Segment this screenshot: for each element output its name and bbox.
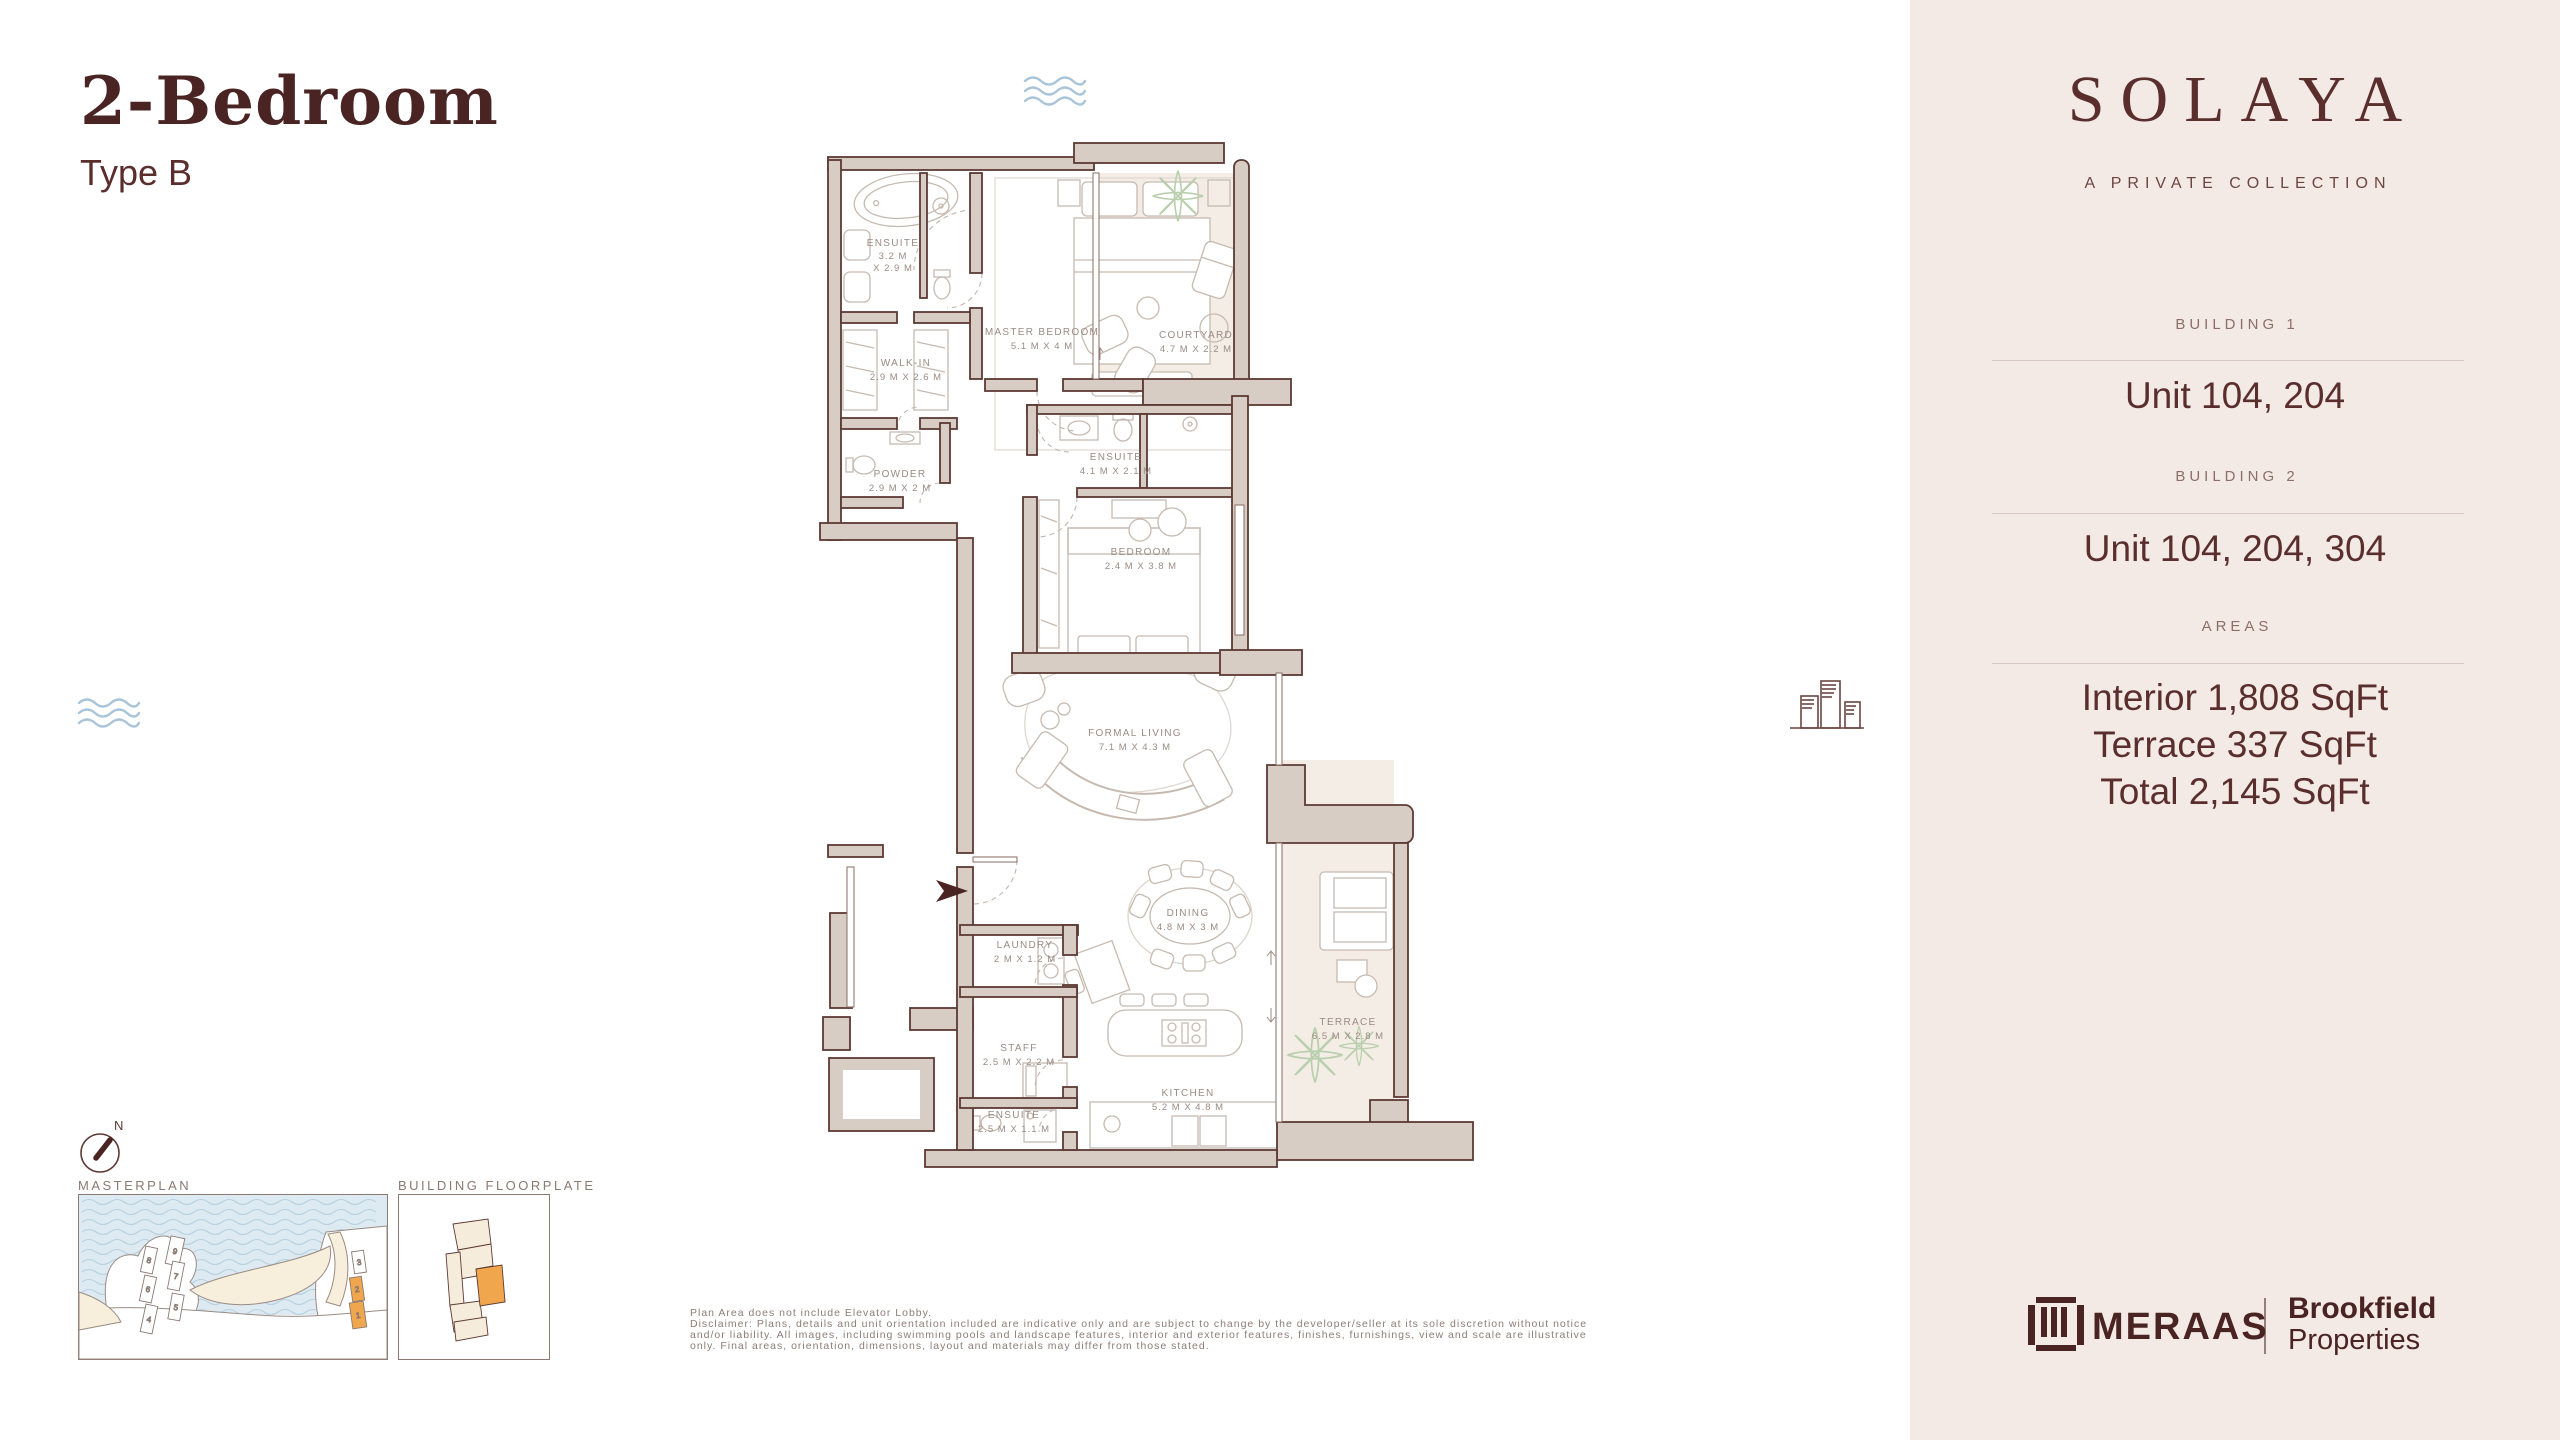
svg-text:5.1 M X 4 M: 5.1 M X 4 M bbox=[1011, 341, 1073, 352]
skyline-icon bbox=[1788, 674, 1868, 736]
meraas-wordmark: MERAAS bbox=[2092, 1306, 2269, 1349]
compass-icon: N bbox=[74, 1116, 138, 1180]
elevator-core bbox=[843, 1070, 920, 1119]
page-subtitle: Type B bbox=[80, 152, 192, 194]
floor-plan: ENSUITE 3.2 M X 2.9 M MASTER BEDROOM 5.1… bbox=[810, 60, 1490, 1180]
room-label-ensuite-master: ENSUITE bbox=[867, 238, 919, 249]
floorplate-label: BUILDING FLOORPLATE bbox=[398, 1178, 596, 1193]
room-label-walk-in: WALK-IN bbox=[881, 358, 931, 369]
brochure-page: 2-Bedroom Type B bbox=[0, 0, 2560, 1440]
masterplan-thumbnail: 9 8 7 6 5 4 3 2 1 bbox=[78, 1194, 388, 1360]
section-label-building-2: BUILDING 2 bbox=[1910, 468, 2560, 485]
room-label-terrace: TERRACE bbox=[1320, 1017, 1377, 1028]
disclaimer-line: only. Final areas, orientation, dimensio… bbox=[690, 1341, 1587, 1352]
room-label-kitchen: KITCHEN bbox=[1162, 1088, 1215, 1099]
room-label-laundry: LAUNDRY bbox=[997, 940, 1054, 951]
logo-divider bbox=[2264, 1298, 2266, 1354]
building-1-units: Unit 104, 204 bbox=[1910, 372, 2560, 419]
room-label-dining: DINING bbox=[1167, 908, 1210, 919]
svg-text:4.1 M X 2.1 M: 4.1 M X 2.1 M bbox=[1080, 466, 1152, 477]
waves-icon bbox=[76, 696, 142, 732]
highlighted-unit bbox=[476, 1265, 505, 1306]
section-label-building-1: BUILDING 1 bbox=[1910, 316, 2560, 333]
svg-text:2.5 M X 1.1 M: 2.5 M X 1.1 M bbox=[978, 1124, 1050, 1135]
brand-tagline: A PRIVATE COLLECTION bbox=[1910, 175, 2560, 193]
svg-text:4.7 M X 2.2 M: 4.7 M X 2.2 M bbox=[1160, 344, 1232, 355]
section-label-areas: AREAS bbox=[1910, 618, 2560, 635]
svg-text:3.2 M: 3.2 M bbox=[879, 251, 908, 262]
meraas-icon bbox=[2028, 1295, 2084, 1353]
page-title: 2-Bedroom bbox=[80, 62, 499, 140]
room-label-ensuite-2: ENSUITE bbox=[1090, 452, 1142, 463]
brookfield-wordmark-line1: Brookfield bbox=[2288, 1293, 2436, 1324]
room-label-formal-living: FORMAL LIVING bbox=[1088, 728, 1182, 739]
room-label-courtyard: COURTYARD bbox=[1159, 330, 1233, 341]
area-total: Total 2,145 SqFt bbox=[1910, 768, 2560, 815]
building-2-units: Unit 104, 204, 304 bbox=[1910, 525, 2560, 572]
floorplate-thumbnail bbox=[398, 1194, 550, 1360]
room-label-staff: STAFF bbox=[1000, 1043, 1037, 1054]
svg-text:2.4 M X 3.8 M: 2.4 M X 3.8 M bbox=[1105, 561, 1177, 572]
room-label-master-bedroom: MASTER BEDROOM bbox=[985, 327, 1099, 338]
masterplan-label: MASTERPLAN bbox=[78, 1178, 191, 1193]
compass-north-label: N bbox=[114, 1118, 123, 1133]
svg-text:2.9 M X 2.6 M: 2.9 M X 2.6 M bbox=[870, 372, 942, 383]
svg-text:2 M X 1.2 M: 2 M X 1.2 M bbox=[994, 954, 1056, 965]
sidebar: SOLAYA A PRIVATE COLLECTION BUILDING 1 U… bbox=[1910, 0, 2560, 1440]
svg-text:2.9 M X 2 M: 2.9 M X 2 M bbox=[869, 483, 931, 494]
brookfield-wordmark-line2: Properties bbox=[2288, 1325, 2420, 1356]
area-interior: Interior 1,808 SqFt bbox=[1910, 674, 2560, 721]
svg-text:6.5 M X 2.8 M: 6.5 M X 2.8 M bbox=[1312, 1031, 1384, 1042]
disclaimer: Plan Area does not include Elevator Lobb… bbox=[690, 1308, 1587, 1352]
brand-logo: SOLAYA bbox=[1910, 62, 2560, 138]
divider bbox=[1992, 513, 2464, 514]
area-terrace: Terrace 337 SqFt bbox=[1910, 721, 2560, 768]
svg-text:7.1 M X 4.3 M: 7.1 M X 4.3 M bbox=[1099, 742, 1171, 753]
room-label-powder: POWDER bbox=[874, 469, 927, 480]
room-label-ensuite-staff: ENSUITE bbox=[988, 1110, 1040, 1121]
svg-text:2.5 M X 2.2 M: 2.5 M X 2.2 M bbox=[983, 1057, 1055, 1068]
svg-text:X 2.9 M: X 2.9 M bbox=[873, 263, 913, 274]
divider bbox=[1992, 360, 2464, 361]
svg-text:5.2 M X 4.8 M: 5.2 M X 4.8 M bbox=[1152, 1102, 1224, 1113]
room-label-bedroom: BEDROOM bbox=[1111, 547, 1172, 558]
divider bbox=[1992, 663, 2464, 664]
svg-text:4.8 M X 3 M: 4.8 M X 3 M bbox=[1157, 922, 1219, 933]
